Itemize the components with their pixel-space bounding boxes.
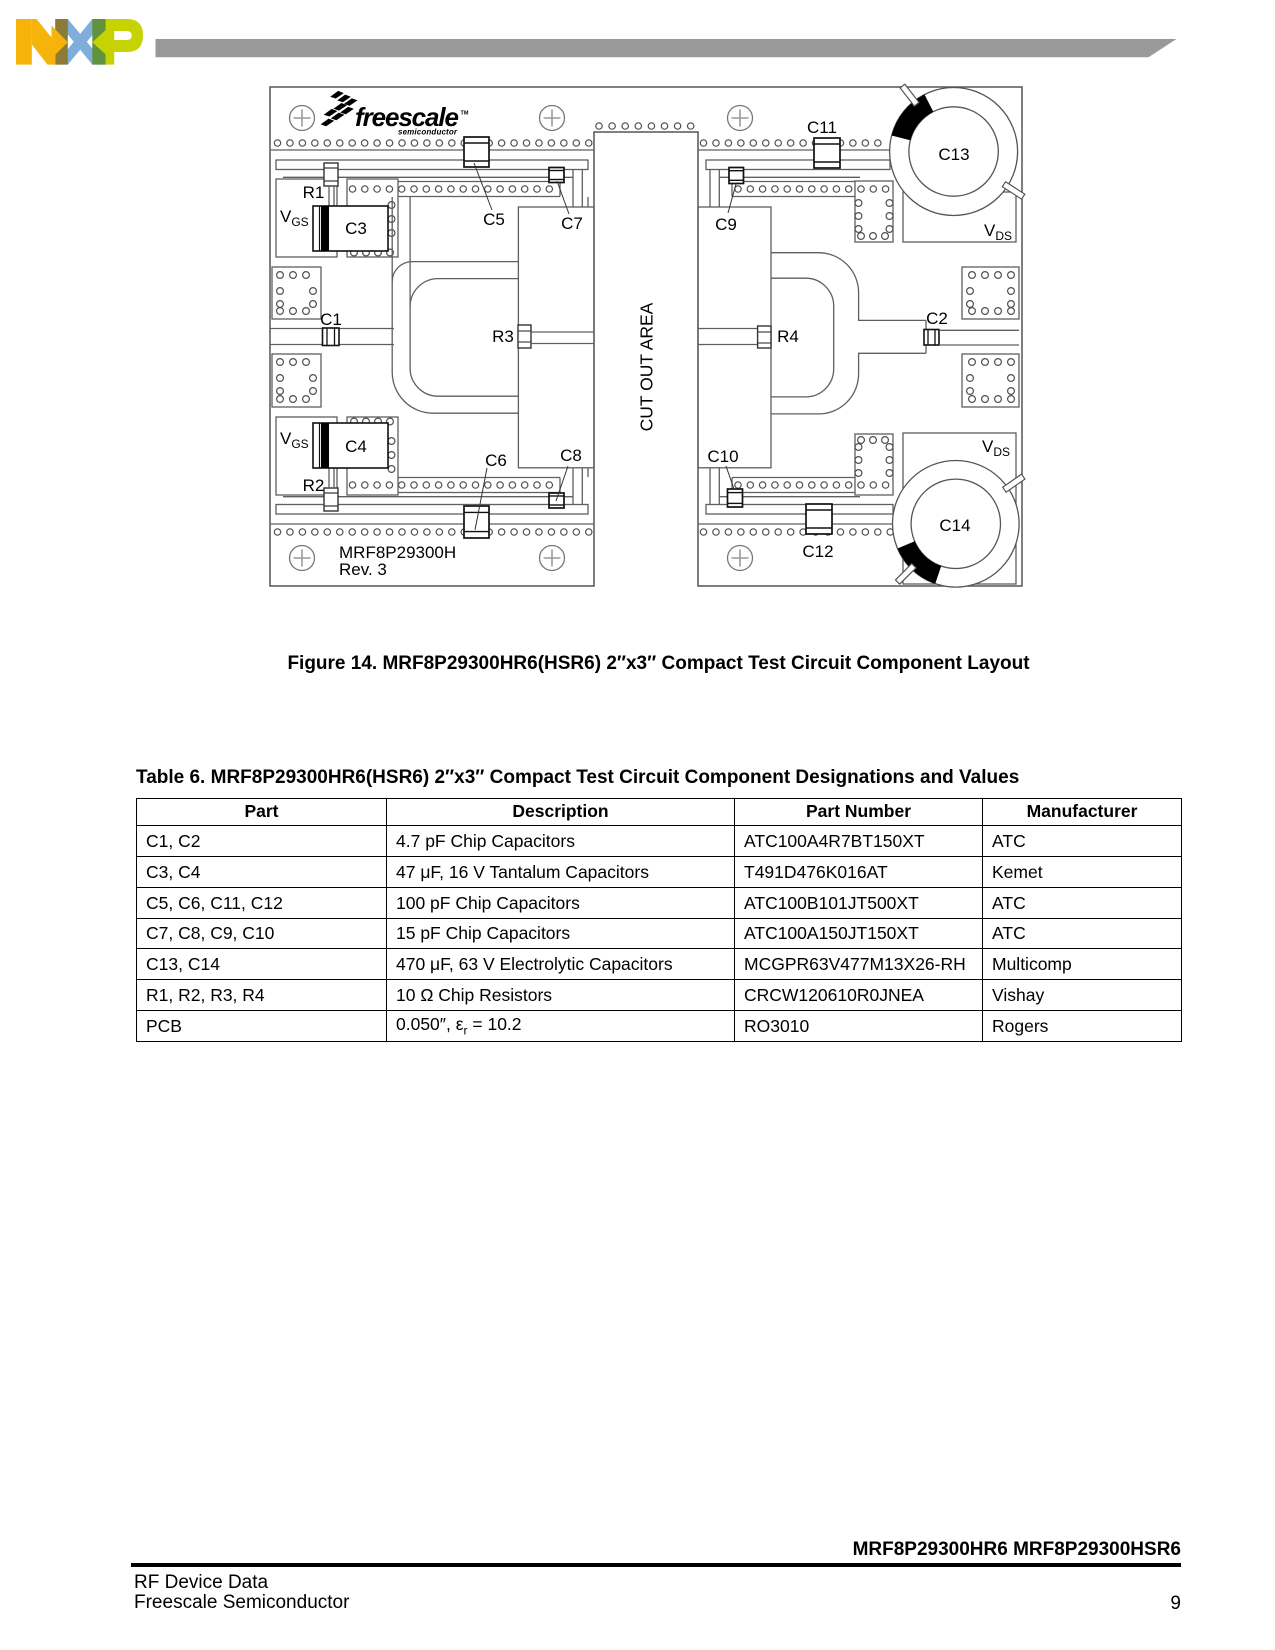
svg-text:C13: C13	[938, 145, 969, 164]
svg-text:C4: C4	[345, 437, 367, 456]
svg-text:C14: C14	[939, 516, 970, 535]
svg-text:C7: C7	[561, 214, 583, 233]
svg-text:R3: R3	[492, 327, 514, 346]
svg-text:C1: C1	[320, 310, 342, 329]
svg-text:C2: C2	[926, 309, 948, 328]
svg-text:VDS: VDS	[984, 221, 1012, 243]
svg-text:C8: C8	[560, 446, 582, 465]
svg-text:C6: C6	[485, 451, 507, 470]
svg-text:C9: C9	[715, 215, 737, 234]
svg-text:C12: C12	[802, 542, 833, 561]
svg-text:R2: R2	[303, 476, 325, 495]
svg-text:VGS: VGS	[280, 429, 309, 451]
svg-text:VGS: VGS	[280, 207, 309, 229]
svg-text:R1: R1	[303, 183, 325, 202]
svg-text:C3: C3	[345, 219, 367, 238]
svg-text:R4: R4	[777, 327, 799, 346]
svg-text:VDS: VDS	[982, 437, 1010, 459]
svg-text:CUT OUT AREA: CUT OUT AREA	[637, 302, 657, 431]
svg-text:C5: C5	[483, 210, 505, 229]
svg-text:semiconductor: semiconductor	[398, 128, 458, 137]
svg-text:TM: TM	[461, 111, 469, 117]
svg-text:C10: C10	[707, 447, 738, 466]
svg-text:Rev. 3: Rev. 3	[339, 560, 387, 579]
svg-text:C11: C11	[807, 118, 837, 137]
